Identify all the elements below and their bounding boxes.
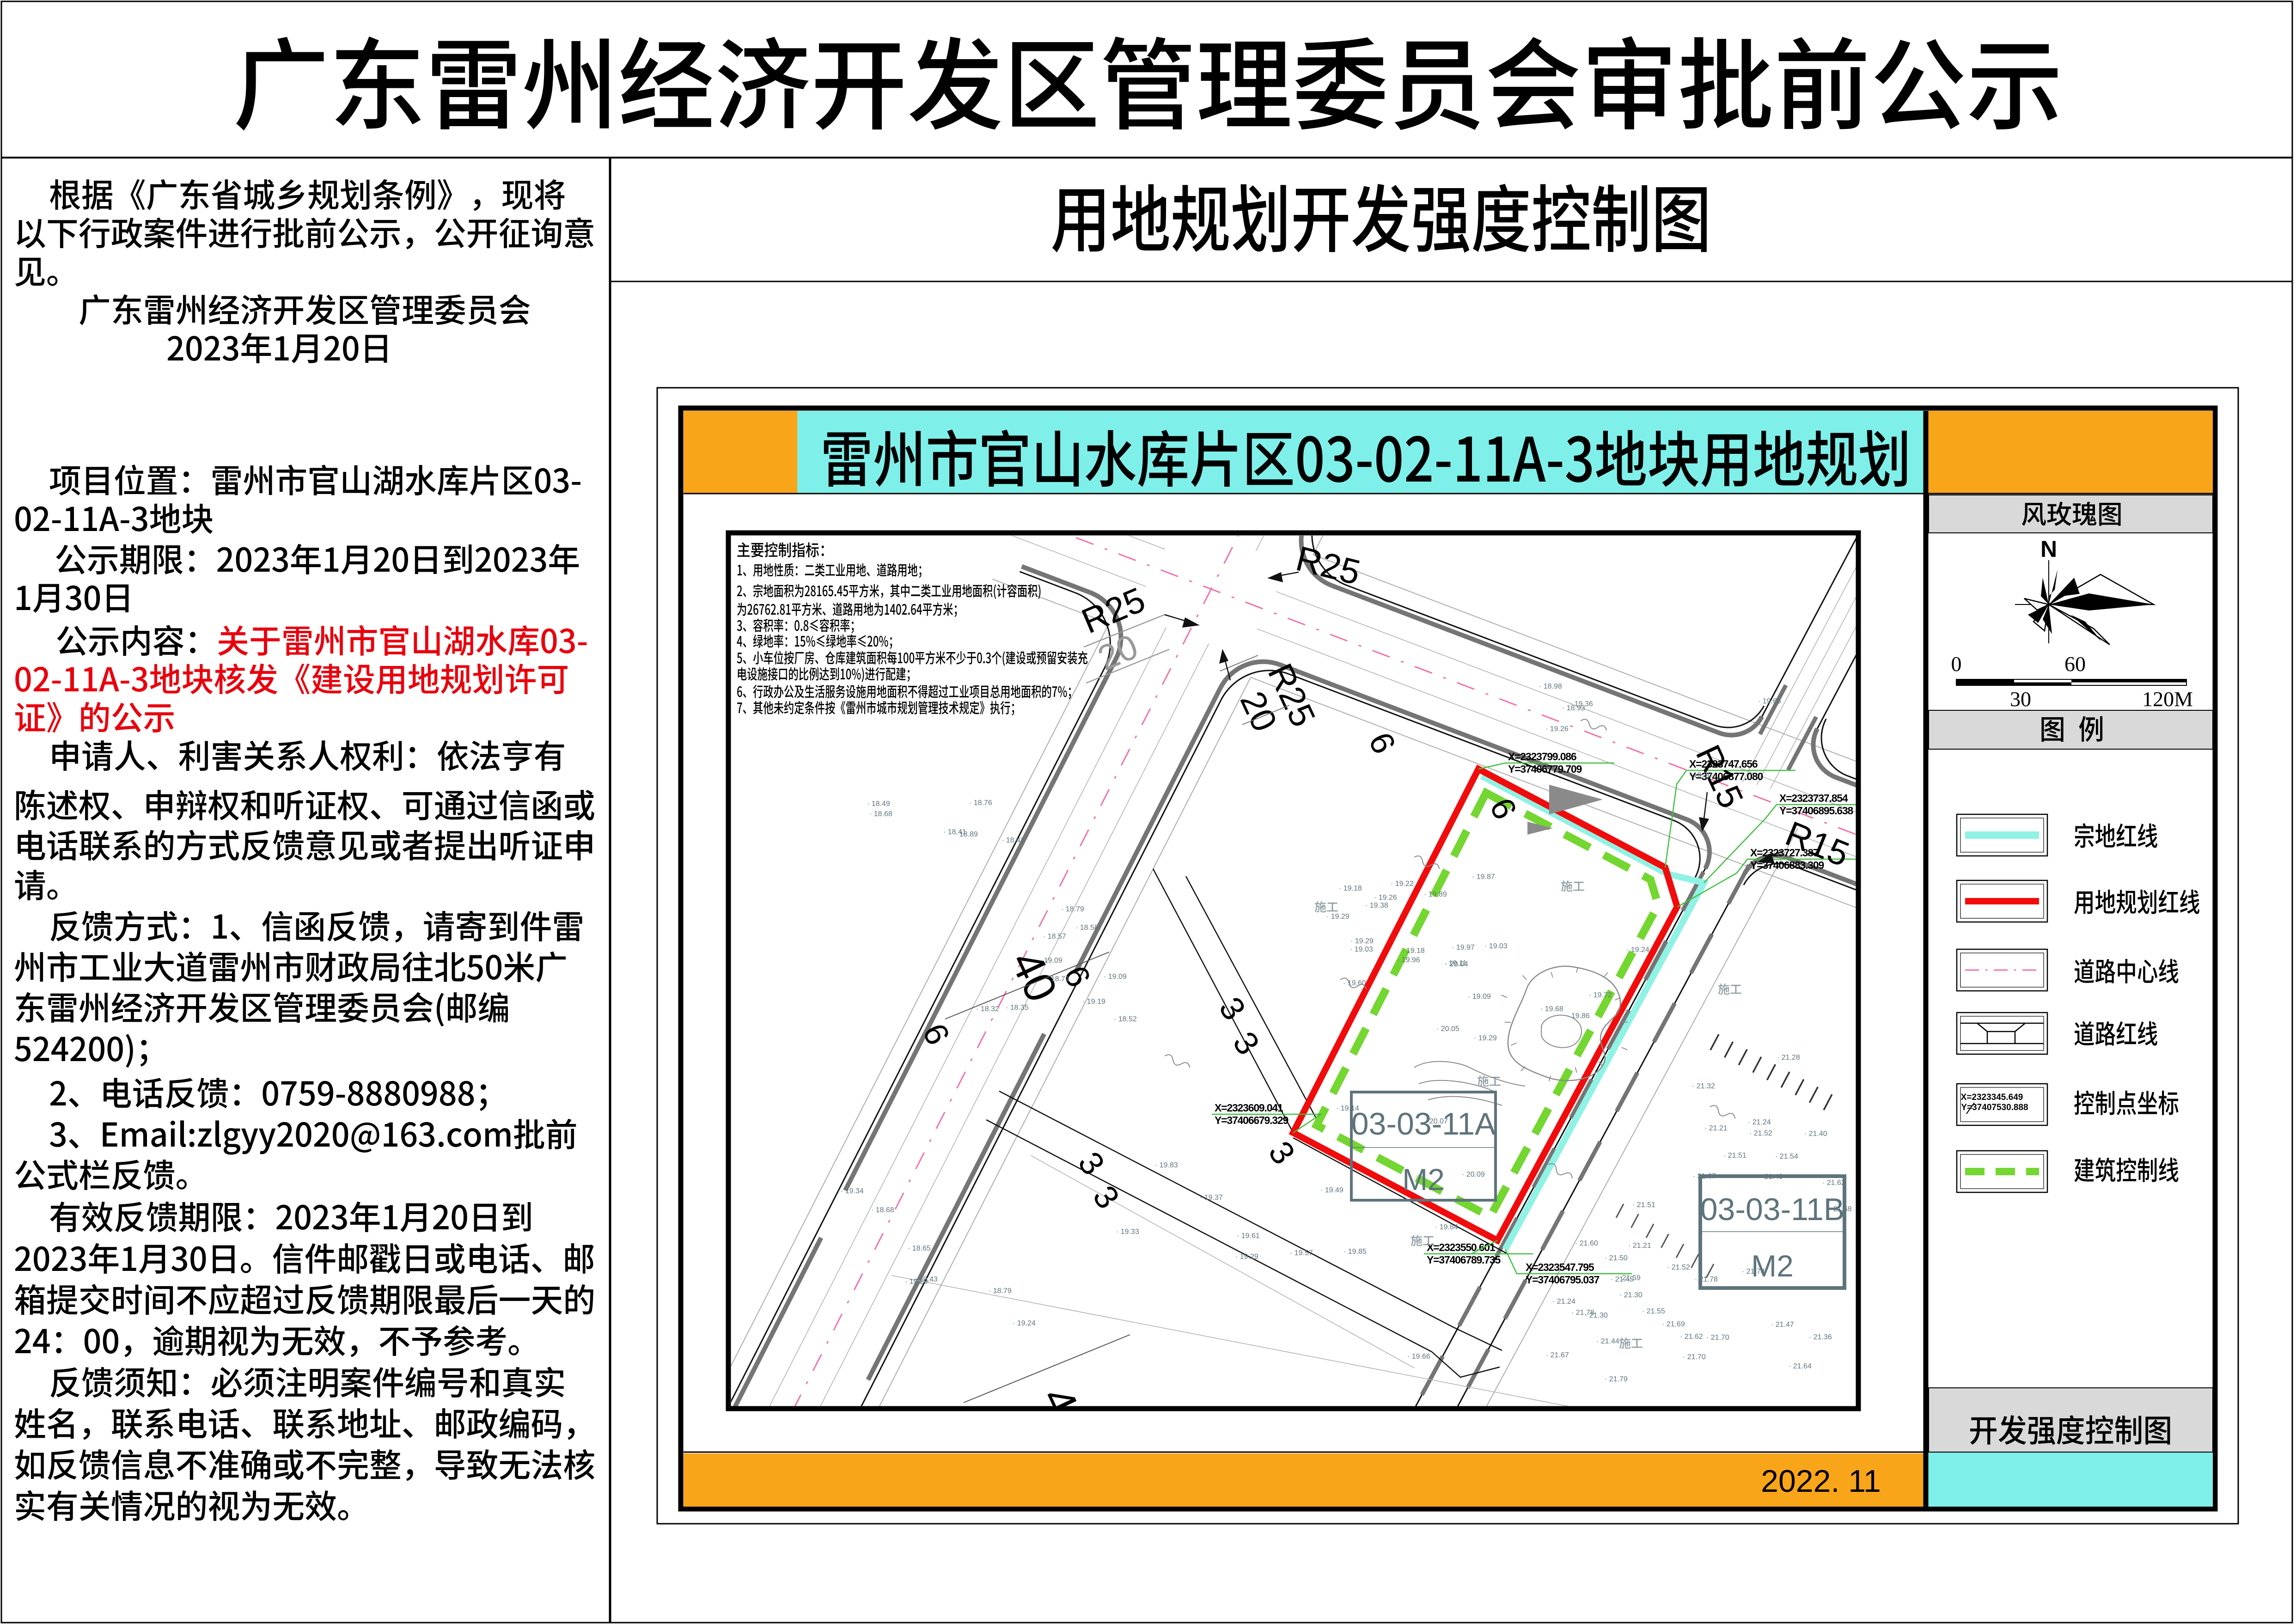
svg-text:· 19.89: · 19.89 bbox=[1424, 891, 1447, 898]
svg-text:· 21.74: · 21.74 bbox=[1742, 1268, 1765, 1276]
svg-text:· 20.04: · 20.04 bbox=[1445, 960, 1468, 968]
svg-text:03-03-11A: 03-03-11A bbox=[1351, 1106, 1496, 1142]
svg-text:· 19.86: · 19.86 bbox=[1567, 1012, 1590, 1020]
svg-text:60: 60 bbox=[2064, 652, 2086, 676]
svg-text:· 21.32: · 21.32 bbox=[1692, 1082, 1715, 1090]
svg-text:· 19.83: · 19.83 bbox=[1155, 1161, 1178, 1169]
svg-text:· 18.98: · 18.98 bbox=[1539, 683, 1562, 690]
svg-text:· 21.64: · 21.64 bbox=[1789, 1362, 1812, 1370]
svg-text:· 19.49: · 19.49 bbox=[1320, 1186, 1343, 1194]
svg-text:· 19.37: · 19.37 bbox=[1200, 1194, 1223, 1202]
svg-text:X=2323609.041: X=2323609.041 bbox=[1215, 1102, 1283, 1114]
svg-text:Y=37406789.735: Y=37406789.735 bbox=[1427, 1254, 1501, 1266]
svg-text:· 21.62: · 21.62 bbox=[1822, 1179, 1845, 1187]
svg-text:· 21.47: · 21.47 bbox=[1771, 1321, 1794, 1329]
svg-text:· 21.50: · 21.50 bbox=[1605, 1254, 1628, 1262]
svg-text:120M: 120M bbox=[2142, 687, 2193, 711]
svg-text:Y=37406795.037: Y=37406795.037 bbox=[1526, 1274, 1599, 1286]
svg-text:· 21.40: · 21.40 bbox=[1760, 1173, 1783, 1181]
svg-text:· 19.65: · 19.65 bbox=[1758, 697, 1781, 705]
svg-text:· 19.24: · 19.24 bbox=[1626, 946, 1649, 954]
svg-text:· 19.03: · 19.03 bbox=[1350, 946, 1373, 953]
svg-text:· 19.09: · 19.09 bbox=[1468, 993, 1491, 1001]
svg-text:· 19.97: · 19.97 bbox=[1452, 944, 1475, 952]
svg-text:· 19.57: · 19.57 bbox=[1290, 1249, 1313, 1257]
svg-text:· 18.49: · 18.49 bbox=[867, 800, 890, 808]
svg-text:· 21.30: · 21.30 bbox=[1585, 1312, 1608, 1319]
svg-text:30: 30 bbox=[2010, 687, 2031, 711]
svg-text:M2: M2 bbox=[1402, 1162, 1445, 1197]
svg-text:· 21.62: · 21.62 bbox=[1680, 1333, 1703, 1341]
svg-text:· 18.93: · 18.93 bbox=[1562, 704, 1585, 712]
svg-text:2022. 11: 2022. 11 bbox=[1761, 1464, 1881, 1499]
svg-text:Y=37406779.709: Y=37406779.709 bbox=[1508, 763, 1582, 775]
svg-text:· 21.28: · 21.28 bbox=[1777, 1054, 1800, 1062]
svg-text:· 20.07: · 20.07 bbox=[1425, 1117, 1448, 1125]
svg-text:· 21.30: · 21.30 bbox=[1619, 1291, 1643, 1299]
svg-text:· 18.65: · 18.65 bbox=[908, 1245, 931, 1252]
svg-text:· 19.26: · 19.26 bbox=[1374, 894, 1397, 902]
svg-text:· 21.40: · 21.40 bbox=[1804, 1130, 1827, 1138]
svg-text:· 18.57: · 18.57 bbox=[1043, 933, 1066, 940]
svg-text:· 18.68: · 18.68 bbox=[869, 810, 892, 818]
svg-text:N: N bbox=[2040, 536, 2057, 562]
svg-text:· 21.70: · 21.70 bbox=[1683, 1353, 1706, 1361]
svg-text:Y=37406679.329: Y=37406679.329 bbox=[1215, 1114, 1288, 1126]
svg-text:· 21.24: · 21.24 bbox=[1552, 1298, 1575, 1306]
svg-text:· 19.30: · 19.30 bbox=[1689, 771, 1712, 779]
svg-text:· 19.96: · 19.96 bbox=[1397, 956, 1420, 964]
svg-text:· 21.52: · 21.52 bbox=[1667, 1264, 1690, 1271]
svg-text:· 18.52: · 18.52 bbox=[1114, 1015, 1137, 1023]
svg-text:· 21.78: · 21.78 bbox=[1695, 1276, 1718, 1283]
svg-text:· 21.51: · 21.51 bbox=[1723, 1152, 1746, 1160]
svg-text:· 21.51: · 21.51 bbox=[1632, 1201, 1655, 1209]
svg-text:· 19.29: · 19.29 bbox=[1235, 1253, 1258, 1261]
svg-text:· 21.68: · 21.68 bbox=[1829, 1205, 1852, 1213]
svg-text:X=2323345.649: X=2323345.649 bbox=[1961, 1093, 2023, 1102]
svg-text:03-03-11B: 03-03-11B bbox=[1700, 1192, 1845, 1227]
svg-text:X=2323547.795: X=2323547.795 bbox=[1526, 1261, 1594, 1273]
svg-text:X=2323737.854: X=2323737.854 bbox=[1779, 792, 1848, 804]
svg-text:· 19.33: · 19.33 bbox=[1116, 1228, 1139, 1236]
svg-text:· 19.26: · 19.26 bbox=[1545, 725, 1569, 733]
svg-text:· 18.79: · 18.79 bbox=[989, 1287, 1012, 1295]
svg-text:· 19.19: · 19.19 bbox=[1082, 998, 1105, 1006]
svg-text:· 19.29: · 19.29 bbox=[1474, 1034, 1497, 1042]
svg-text:· 21.24: · 21.24 bbox=[1748, 1118, 1771, 1126]
svg-text:· 21.70: · 21.70 bbox=[1706, 1334, 1729, 1342]
svg-text:· 21.21: · 21.21 bbox=[1628, 1242, 1651, 1250]
svg-text:· 21.44: · 21.44 bbox=[1596, 1337, 1619, 1345]
svg-text:· 18.32: · 18.32 bbox=[976, 1005, 999, 1013]
svg-text:· 19.38: · 19.38 bbox=[1365, 902, 1388, 910]
svg-text:· 19.18: · 19.18 bbox=[1402, 947, 1425, 955]
svg-text:· 19.60: · 19.60 bbox=[1343, 979, 1366, 987]
svg-text:· 18.71: · 18.71 bbox=[1046, 975, 1069, 983]
svg-text:· 19.18: · 19.18 bbox=[1339, 885, 1362, 892]
svg-text:· 21.55: · 21.55 bbox=[1642, 1307, 1665, 1315]
svg-text:· 19.66: · 19.66 bbox=[1407, 1353, 1430, 1361]
svg-text:· 19.22: · 19.22 bbox=[1391, 880, 1414, 888]
svg-text:· 21.54: · 21.54 bbox=[1775, 1153, 1798, 1160]
svg-text:· 19.24: · 19.24 bbox=[1013, 1319, 1036, 1327]
svg-text:· 21.36: · 21.36 bbox=[1809, 1333, 1832, 1341]
svg-text:Y=37406895.638: Y=37406895.638 bbox=[1779, 805, 1853, 817]
svg-text:· 21.79: · 21.79 bbox=[1605, 1375, 1628, 1383]
svg-text:· 19.85: · 19.85 bbox=[1343, 1248, 1367, 1256]
svg-text:· 18.35: · 18.35 bbox=[1006, 1004, 1029, 1012]
svg-text:· 19.03: · 19.03 bbox=[1484, 942, 1508, 950]
svg-text:· 20.09: · 20.09 bbox=[1462, 1171, 1485, 1178]
svg-text:· 18.76: · 18.76 bbox=[969, 799, 992, 807]
svg-text:· 19.68: · 19.68 bbox=[1540, 1005, 1563, 1013]
svg-text:· 21.60: · 21.60 bbox=[1575, 1239, 1598, 1247]
svg-text:· 19.72: · 19.72 bbox=[1589, 991, 1612, 999]
svg-text:· 19.29: · 19.29 bbox=[1350, 937, 1374, 945]
svg-text:· 19.84: · 19.84 bbox=[1435, 1223, 1458, 1231]
svg-text:M2: M2 bbox=[1751, 1249, 1794, 1283]
svg-text:· 21.52: · 21.52 bbox=[1749, 1129, 1772, 1137]
svg-text:· 19.34: · 19.34 bbox=[841, 1187, 864, 1195]
svg-text:· 20.05: · 20.05 bbox=[1436, 1025, 1459, 1033]
svg-text:· 18.58: · 18.58 bbox=[1075, 924, 1099, 932]
svg-text:· 19.14: · 19.14 bbox=[1336, 1105, 1359, 1112]
svg-text:· 21.21: · 21.21 bbox=[1704, 1124, 1728, 1132]
svg-text:0: 0 bbox=[1951, 652, 1962, 676]
svg-text:X=2323799.086: X=2323799.086 bbox=[1508, 751, 1576, 763]
svg-text:· 21.67: · 21.67 bbox=[1693, 1172, 1716, 1180]
svg-text:· 18.41: · 18.41 bbox=[943, 828, 966, 836]
svg-text:· 19.87: · 19.87 bbox=[1472, 873, 1495, 881]
svg-text:· 19.09: · 19.09 bbox=[1039, 957, 1063, 965]
svg-text:· 18.41: · 18.41 bbox=[1001, 836, 1025, 844]
svg-text:· 21.67: · 21.67 bbox=[1546, 1351, 1569, 1359]
svg-text:· 19.29: · 19.29 bbox=[1326, 913, 1350, 921]
svg-text:· 19.61: · 19.61 bbox=[1237, 1232, 1260, 1240]
svg-text:· 18.68: · 18.68 bbox=[871, 1206, 894, 1214]
svg-text:· 19.29: · 19.29 bbox=[905, 1278, 928, 1286]
svg-text:· 19.09: · 19.09 bbox=[1104, 973, 1127, 981]
svg-text:· 21.69: · 21.69 bbox=[1662, 1320, 1685, 1328]
svg-text:· 21.59: · 21.59 bbox=[1618, 1274, 1641, 1282]
svg-text:· 18.79: · 18.79 bbox=[1061, 905, 1084, 913]
